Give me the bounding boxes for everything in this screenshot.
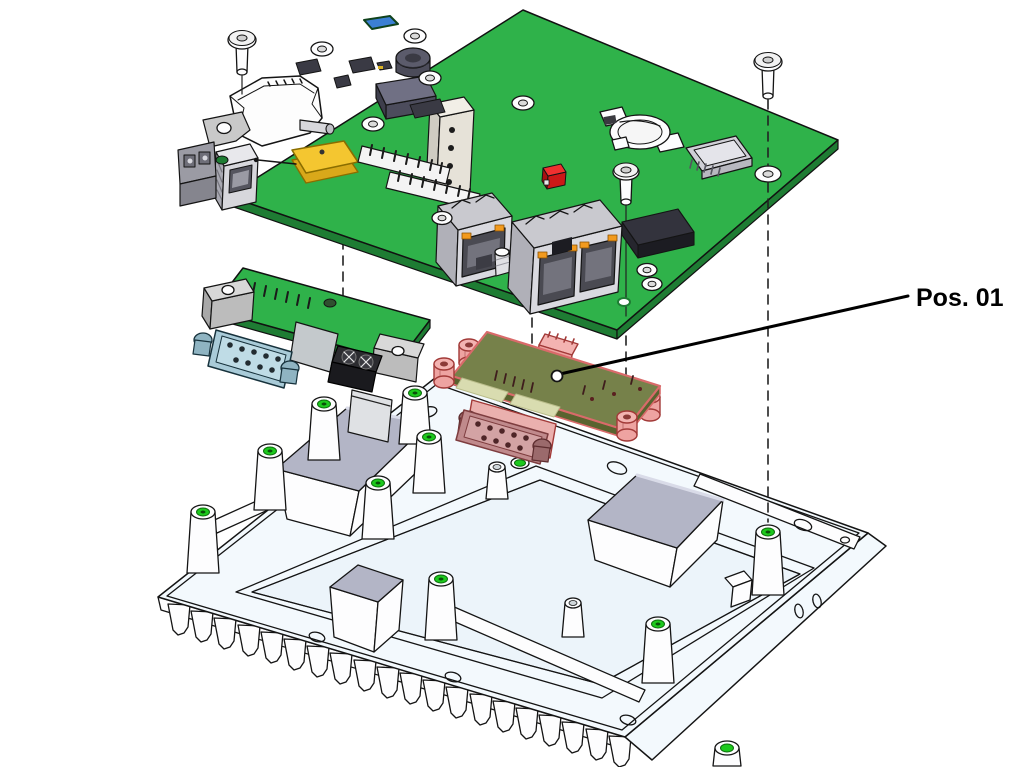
- exploded-view-diagram: Pos. 01: [0, 0, 1024, 767]
- db9-serial-connector: [193, 330, 299, 388]
- bracket: [203, 112, 250, 147]
- fiber-lc-connector: [178, 142, 216, 206]
- standoff-front-right: [617, 411, 637, 441]
- assembly-drawing: Pos. 01: [0, 0, 1024, 767]
- leader-target-dot: [552, 371, 563, 382]
- spacer: [495, 248, 510, 276]
- red-component: [542, 164, 566, 189]
- screw-top-right: [754, 53, 782, 100]
- usb-connector: [214, 144, 258, 210]
- callout-label: Pos. 01: [916, 284, 1004, 312]
- standoff-column: [348, 390, 392, 442]
- chip-small-3: [334, 75, 351, 88]
- chip-small-2: [349, 57, 375, 73]
- mounting-bracket-left: [202, 279, 254, 329]
- blue-component: [364, 16, 398, 29]
- chip-small-1: [296, 59, 321, 75]
- standoff-front-left: [434, 358, 454, 388]
- antenna-housing: [230, 76, 334, 146]
